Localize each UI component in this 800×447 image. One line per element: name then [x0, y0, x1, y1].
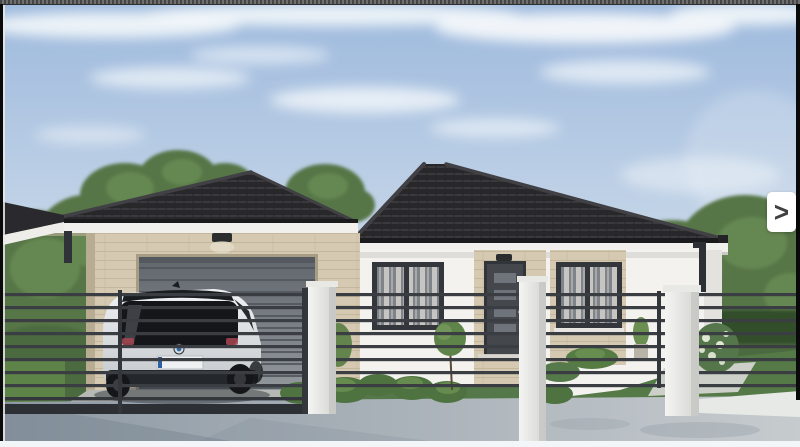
- right-black-bar: [796, 4, 800, 400]
- left-black-bar: [0, 4, 3, 441]
- potted-plant: [633, 317, 649, 358]
- pillar-left: [306, 281, 338, 414]
- door-lamp: [496, 254, 512, 261]
- garage-side-wall: [86, 233, 95, 400]
- house-photo: [0, 0, 800, 447]
- next-image-button[interactable]: >: [767, 192, 796, 232]
- car-taillight-right: [226, 338, 238, 345]
- garage-wall-lamp: [210, 233, 234, 253]
- car-taillight-left: [122, 338, 134, 345]
- bottom-white-strip: [0, 441, 800, 447]
- license-plate: [157, 356, 203, 369]
- top-stripe-bar: [0, 0, 800, 5]
- pillar-middle: [517, 276, 548, 441]
- left-downspout: [64, 231, 72, 263]
- chevron-right-icon: >: [774, 198, 789, 225]
- left-window: [370, 262, 446, 334]
- photo-edge: [3, 4, 5, 441]
- pillar-right: [663, 285, 701, 416]
- image-viewer: >: [0, 0, 800, 447]
